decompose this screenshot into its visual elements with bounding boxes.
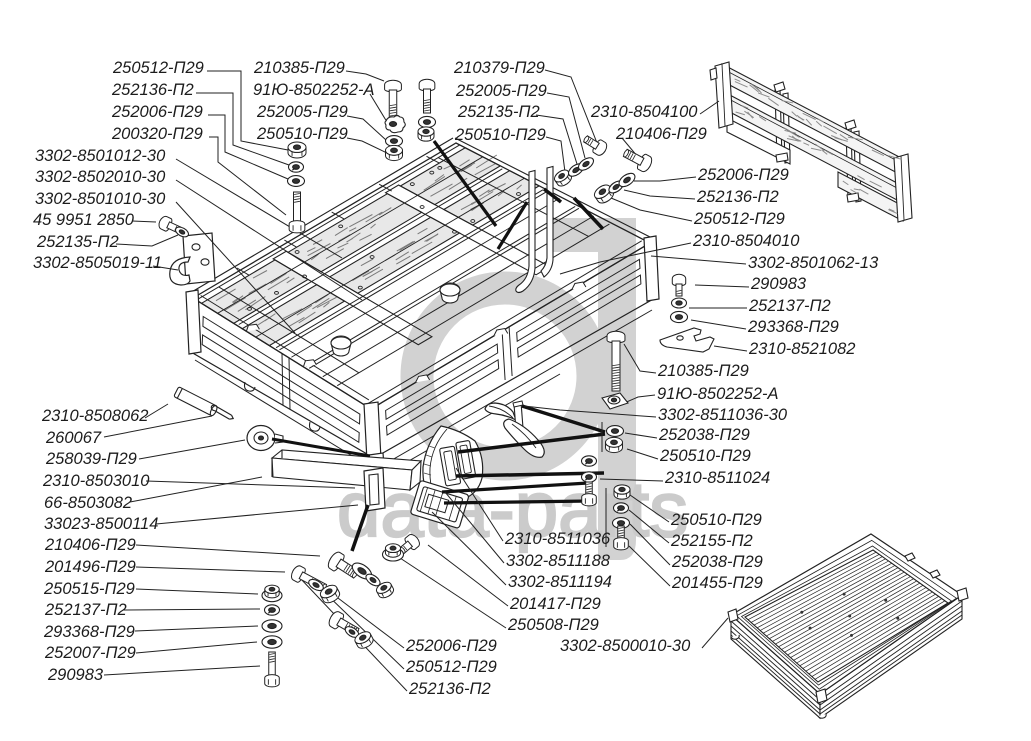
svg-text:293368-П29: 293368-П29	[747, 318, 839, 336]
svg-text:290983: 290983	[47, 666, 104, 684]
svg-text:252155-П2: 252155-П2	[670, 532, 753, 550]
svg-text:250510-П29: 250510-П29	[256, 125, 348, 143]
svg-text:252006-П29: 252006-П29	[111, 103, 203, 121]
svg-text:210379-П29: 210379-П29	[453, 59, 545, 77]
svg-text:200320-П29: 200320-П29	[111, 125, 203, 143]
svg-text:201455-П29: 201455-П29	[671, 574, 763, 592]
svg-text:210406-П29: 210406-П29	[615, 125, 707, 143]
svg-text:2310-8504100: 2310-8504100	[590, 103, 698, 121]
svg-text:252136-П2: 252136-П2	[408, 680, 491, 698]
svg-text:45 9951 2850: 45 9951 2850	[33, 211, 135, 229]
svg-text:33023-8500114: 33023-8500114	[44, 515, 158, 533]
svg-text:252137-П2: 252137-П2	[44, 601, 127, 619]
svg-text:210406-П29: 210406-П29	[44, 536, 136, 554]
svg-text:250515-П29: 250515-П29	[43, 580, 135, 598]
svg-text:91Ю-8502252-А: 91Ю-8502252-А	[253, 81, 374, 99]
svg-text:2310-8511036: 2310-8511036	[504, 530, 611, 548]
svg-text:252135-П2: 252135-П2	[36, 233, 119, 251]
svg-text:201417-П29: 201417-П29	[509, 595, 601, 613]
svg-text:252136-П2: 252136-П2	[696, 188, 779, 206]
svg-text:2310-8511024: 2310-8511024	[664, 469, 770, 487]
svg-text:66-8503082: 66-8503082	[44, 494, 132, 512]
svg-text:252005-П29: 252005-П29	[256, 103, 348, 121]
svg-text:258039-П29: 258039-П29	[45, 450, 137, 468]
svg-text:3302-8505019-11: 3302-8505019-11	[33, 254, 162, 272]
svg-text:252006-П29: 252006-П29	[697, 166, 789, 184]
svg-text:2310-8503010: 2310-8503010	[42, 472, 150, 490]
svg-text:252135-П2: 252135-П2	[457, 103, 540, 121]
svg-text:250510-П29: 250510-П29	[454, 126, 546, 144]
svg-text:201496-П29: 201496-П29	[44, 558, 136, 576]
svg-text:3302-8511036-30: 3302-8511036-30	[658, 406, 788, 424]
svg-text:252007-П29: 252007-П29	[44, 644, 136, 662]
svg-text:3302-8511188: 3302-8511188	[506, 552, 611, 570]
svg-text:260067: 260067	[45, 429, 102, 447]
svg-text:252136-П2: 252136-П2	[111, 81, 194, 99]
svg-text:3302-8500010-30: 3302-8500010-30	[560, 637, 691, 655]
svg-text:252137-П2: 252137-П2	[748, 297, 831, 315]
svg-text:250512-П29: 250512-П29	[693, 210, 785, 228]
svg-text:250512-П29: 250512-П29	[112, 59, 204, 77]
svg-text:2310-8504010: 2310-8504010	[692, 232, 800, 250]
svg-text:210385-П29: 210385-П29	[253, 59, 345, 77]
svg-text:252006-П29: 252006-П29	[405, 637, 497, 655]
svg-text:250508-П29: 250508-П29	[507, 616, 599, 634]
svg-text:3302-8502010-30: 3302-8502010-30	[35, 168, 166, 186]
svg-text:91Ю-8502252-А: 91Ю-8502252-А	[657, 385, 778, 403]
svg-text:250512-П29: 250512-П29	[405, 658, 497, 676]
svg-text:210385-П29: 210385-П29	[657, 362, 749, 380]
svg-text:3302-8501010-30: 3302-8501010-30	[35, 190, 166, 208]
svg-text:3302-8501012-30: 3302-8501012-30	[35, 147, 166, 165]
svg-text:290983: 290983	[750, 275, 807, 293]
svg-text:250510-П29: 250510-П29	[659, 447, 751, 465]
svg-text:3302-8511194: 3302-8511194	[508, 573, 612, 591]
svg-text:293368-П29: 293368-П29	[43, 623, 135, 641]
svg-text:2310-8508062: 2310-8508062	[41, 407, 148, 425]
svg-text:250510-П29: 250510-П29	[670, 511, 762, 529]
svg-text:3302-8501062-13: 3302-8501062-13	[748, 254, 879, 272]
svg-text:252005-П29: 252005-П29	[455, 82, 547, 100]
svg-text:252038-П29: 252038-П29	[671, 553, 763, 571]
svg-text:2310-8521082: 2310-8521082	[748, 340, 855, 358]
svg-text:252038-П29: 252038-П29	[658, 426, 750, 444]
